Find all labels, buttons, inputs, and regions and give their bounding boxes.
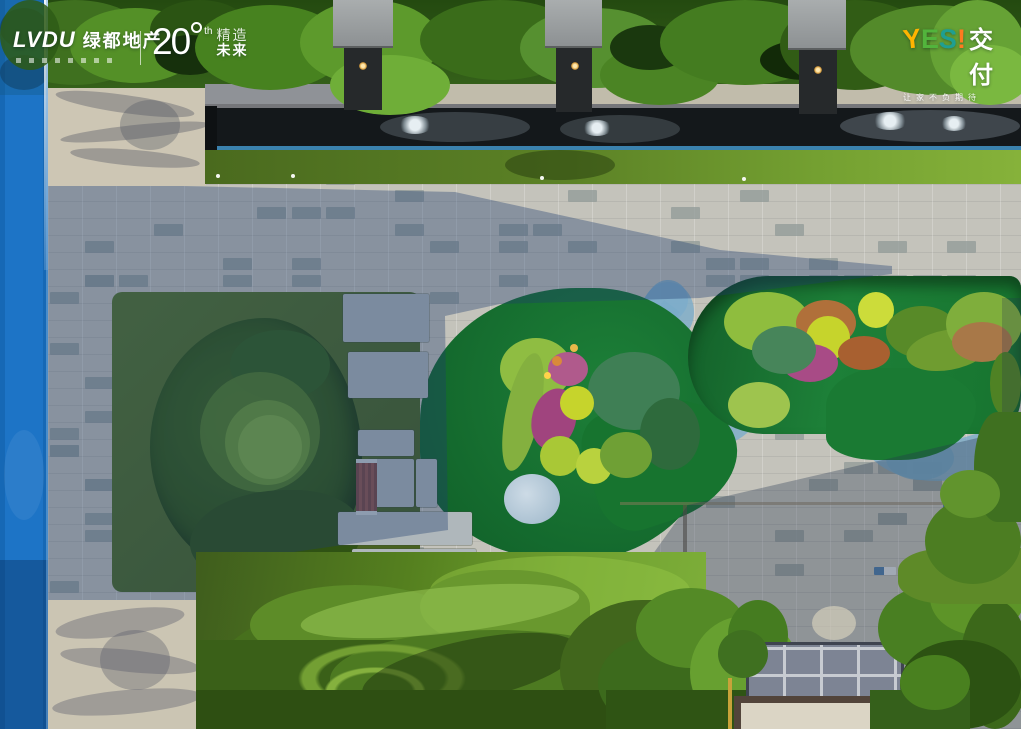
fountain-jet — [872, 112, 908, 130]
wall-pillar — [556, 46, 592, 112]
stepping-stone — [338, 512, 472, 545]
yes-cn-text: 交付 — [969, 20, 1018, 90]
shrub — [940, 470, 1000, 518]
track-edge-line — [46, 0, 48, 729]
tree-shadow-dapple — [100, 630, 170, 690]
topiary-ball — [540, 436, 580, 476]
anniversary-slogan-line2: 未来 — [217, 43, 249, 58]
pillar-cap — [545, 0, 602, 48]
flower-patch — [600, 432, 652, 478]
tree-shadow-dapple — [120, 100, 180, 150]
yes-delivery-logo: Y E S ! 交付 让家不负期待 — [903, 20, 1018, 103]
channel-end-cap — [205, 106, 217, 150]
tree-canopy — [900, 655, 970, 710]
anniversary-dot-icon — [191, 22, 202, 33]
fountain-jet — [940, 116, 968, 131]
flower-patch — [504, 474, 560, 524]
wall-pillar — [799, 46, 837, 114]
anniversary-number: 20 — [152, 22, 189, 62]
flower-patch — [838, 336, 890, 370]
topiary-ball — [560, 386, 594, 420]
path-light — [540, 176, 544, 180]
pillar-light — [359, 62, 367, 70]
water-sparkle — [840, 110, 1020, 142]
garden-bench — [356, 459, 377, 515]
lvdu-logo-latin: LVDU — [13, 27, 76, 52]
flower-patch — [752, 326, 816, 374]
pillar-cap — [333, 0, 393, 48]
yes-logo-tagline: 让家不负期待 — [903, 92, 1018, 103]
yes-letter-y: Y — [901, 23, 922, 55]
anniversary-20th-logo: 20th 精造 未来 — [152, 22, 249, 62]
roof-pipe — [728, 678, 732, 729]
lawn-shadow — [505, 150, 615, 180]
anniversary-slogan-line1: 精造 — [217, 28, 249, 43]
path-light — [291, 174, 295, 178]
fountain-jet — [582, 120, 612, 136]
yes-exclamation: ! — [957, 24, 966, 54]
lvdu-logo-cn: 绿都地产 — [83, 31, 163, 51]
tree-canopy — [718, 630, 768, 678]
wayfinding-sign — [874, 567, 896, 575]
stepping-stone — [348, 352, 428, 398]
flower-dot — [544, 372, 551, 379]
yes-letter-s: S — [938, 23, 958, 54]
anniversary-suffix: th — [204, 26, 212, 37]
foliage-blob — [238, 415, 302, 479]
water-sparkle — [560, 115, 680, 143]
pillar-light — [571, 62, 579, 70]
stepping-stone — [358, 430, 414, 456]
wall-pillar — [344, 46, 382, 110]
topiary-ball — [728, 382, 790, 428]
fountain-jet — [398, 116, 432, 134]
hedge-mass — [196, 690, 616, 729]
logo-divider — [140, 31, 141, 65]
stepping-stone — [416, 459, 437, 507]
flower-dot — [552, 356, 562, 366]
stepping-stone — [343, 294, 429, 342]
pillar-cap — [788, 0, 846, 50]
track-texture — [4, 430, 44, 520]
aerial-courtyard-photo: LVDU绿都地产 20th 精造 未来 Y E S ! 交付 让家不负期待 — [0, 0, 1021, 729]
sun-patch — [812, 606, 856, 640]
yes-letter-e: E — [921, 24, 939, 54]
path-light — [216, 174, 220, 178]
track-shading — [0, 560, 48, 729]
pillar-light — [814, 66, 822, 74]
flower-dot — [570, 344, 578, 352]
path-light — [742, 177, 746, 181]
